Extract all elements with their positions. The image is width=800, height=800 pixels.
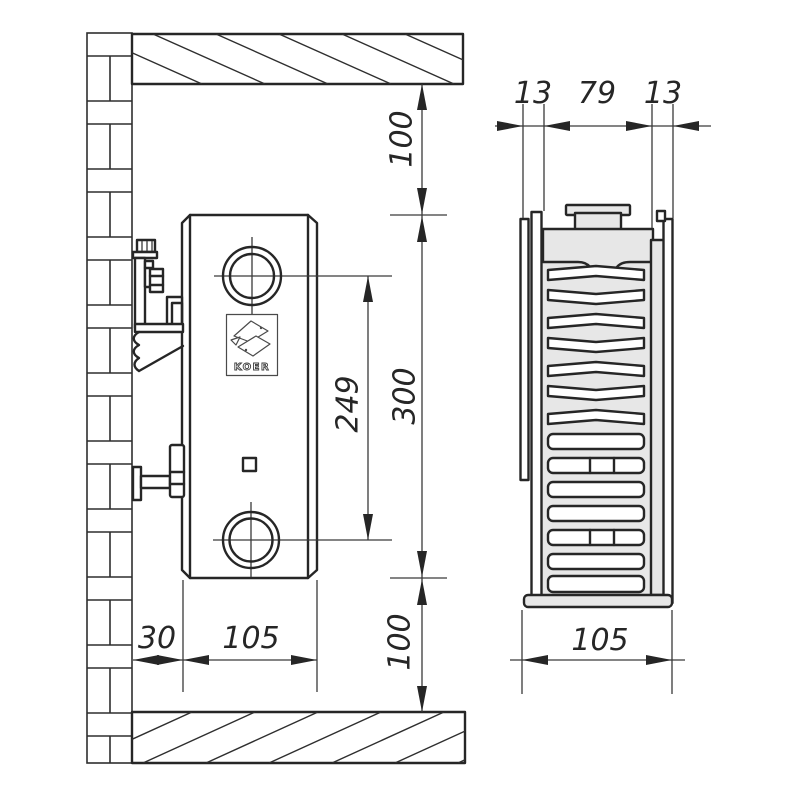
wall-section xyxy=(87,33,132,763)
logo-text: KOER xyxy=(234,362,270,373)
vent-square xyxy=(243,458,256,471)
dim-core-depth: 79 xyxy=(578,76,616,111)
arrow-up-radiator-bottom xyxy=(417,579,427,605)
fin-slot xyxy=(548,482,644,497)
dim-back-panel-depth: 13 xyxy=(644,76,682,111)
bottom-foot-plate xyxy=(524,595,672,607)
radiator-mounting-drawing: KOER xyxy=(0,0,800,800)
front-water-panel xyxy=(532,212,542,603)
ceiling-section xyxy=(90,34,580,84)
ceiling-hatch-lines xyxy=(90,34,580,84)
dim-front-width: 105 xyxy=(222,621,279,656)
arrow-right-depth xyxy=(646,655,672,665)
bracket-base-plate xyxy=(135,324,183,332)
dim-bottom-clearance: 100 xyxy=(383,613,418,670)
bracket-break-lines xyxy=(134,332,183,371)
dim-wall-offset: 30 xyxy=(138,621,176,656)
bracket-nut xyxy=(150,269,163,292)
arrow-up-radiator-top xyxy=(417,216,427,242)
bottom-bolt-shaft xyxy=(141,476,170,488)
logo-fish-eye-1 xyxy=(260,327,262,329)
fin-slot xyxy=(548,434,644,449)
brand-logo: KOER xyxy=(227,315,278,376)
dim-front-panel-depth: 13 xyxy=(514,76,552,111)
fin-slot xyxy=(548,530,644,545)
fin-slot xyxy=(548,506,644,521)
radiator-body-outline xyxy=(182,215,317,578)
arrow-down-radiator-bottom xyxy=(417,551,427,577)
arrow-down-port-spacing xyxy=(363,514,373,540)
dim-radiator-height: 300 xyxy=(388,367,423,424)
arrow-down-radiator-top xyxy=(417,188,427,214)
bracket-vertical-bar xyxy=(135,258,145,328)
top-mounting-bracket xyxy=(133,240,183,371)
arrow-left-back-panel xyxy=(673,121,699,131)
back-panel-inner xyxy=(651,240,664,595)
logo-fish-eye-2 xyxy=(245,349,247,351)
fin-slot xyxy=(548,576,644,592)
arrow-right-width xyxy=(291,655,317,665)
back-panel-plate xyxy=(664,219,673,603)
arrow-right-front-panel xyxy=(497,121,523,131)
convector-fins-lower xyxy=(548,434,644,592)
back-panel-tab xyxy=(657,211,665,221)
arrow-right-core xyxy=(626,121,652,131)
arrow-left-depth xyxy=(522,655,548,665)
floor-outline xyxy=(132,712,465,763)
radiator-side-view xyxy=(521,205,673,607)
front-panel-plate xyxy=(521,219,529,480)
arrow-up-ceiling xyxy=(417,84,427,110)
floor-section xyxy=(80,712,570,763)
dim-total-depth: 105 xyxy=(571,623,628,658)
arrow-right-wall-offset xyxy=(157,655,183,665)
bottom-mounting-bracket xyxy=(133,445,184,500)
floor-hatch-lines xyxy=(80,712,570,763)
fin-slot xyxy=(548,458,644,473)
arrow-left-wall-offset xyxy=(133,655,159,665)
drawing-svg: KOER xyxy=(0,0,800,800)
arrow-left-core xyxy=(544,121,570,131)
dim-port-spacing: 249 xyxy=(331,375,366,432)
arrow-up-port-spacing xyxy=(363,276,373,302)
arrow-down-floor xyxy=(417,686,427,712)
fin-slot xyxy=(548,554,644,569)
dim-top-clearance: 100 xyxy=(385,110,420,167)
arrow-left-width xyxy=(183,655,209,665)
